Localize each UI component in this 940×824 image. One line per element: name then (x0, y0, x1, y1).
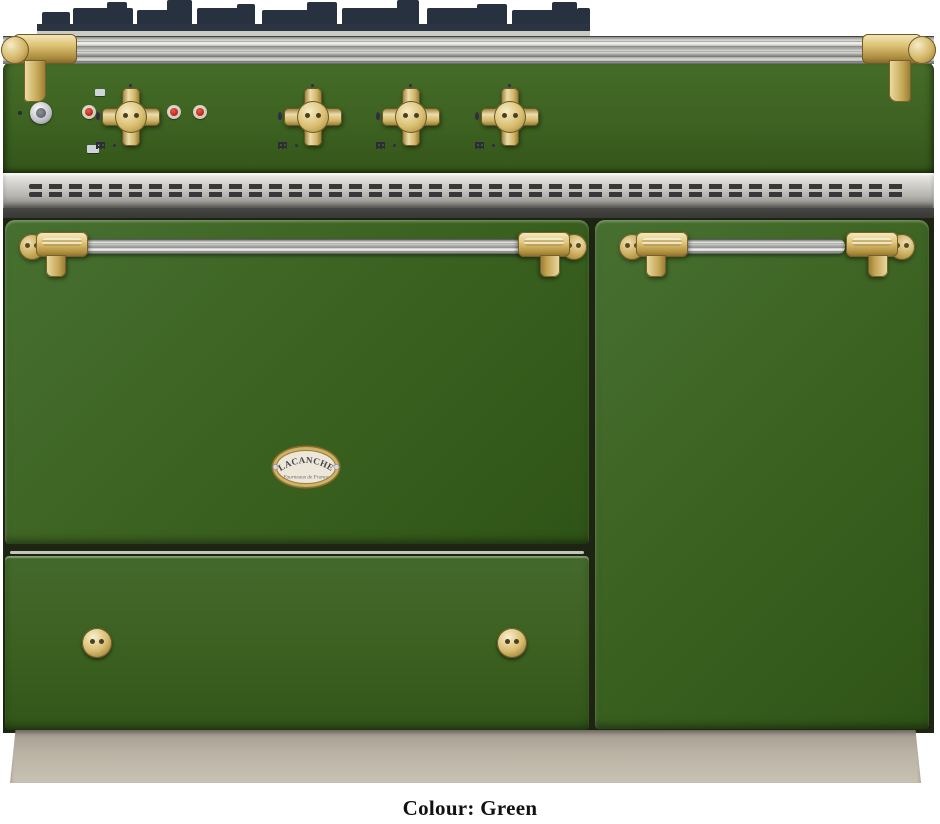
front-towel-rail (3, 36, 934, 64)
vent-slots-row (29, 184, 908, 189)
panel-symbol (475, 142, 484, 149)
vent-strip (3, 173, 934, 208)
storage-drawer (5, 556, 589, 730)
handle-bracket (845, 228, 915, 278)
panel-symbol (129, 84, 132, 87)
panel-symbol (409, 84, 412, 87)
handle-bracket (517, 228, 587, 278)
lacanche-badge: LACANCHE Fourneaux de France (270, 444, 342, 490)
flame-symbol (475, 112, 479, 120)
plinth-base (10, 730, 921, 783)
oven-control-knob (102, 88, 160, 146)
colour-caption: Colour: Green (0, 796, 940, 821)
handle-bracket (19, 228, 89, 278)
badge-tagline-text: Fourneaux de France (282, 475, 329, 481)
panel-symbol (96, 142, 105, 149)
ignition-button (30, 102, 52, 124)
rail-bracket-right (889, 60, 911, 102)
gas-grates (37, 0, 590, 40)
rail-bracket-left (24, 60, 46, 102)
left-door-handle (63, 239, 541, 254)
panel-symbol (113, 144, 116, 147)
burner-control-knob (382, 88, 440, 146)
rail-finial-right (908, 36, 936, 64)
handle-bracket (619, 228, 689, 278)
door-drawer-gap-highlight (10, 551, 584, 554)
left-oven-door: LACANCHE Fourneaux de France (5, 220, 589, 544)
product-photo-lacanche-range: LACANCHE Fourneaux de France Colour: Gre… (0, 0, 940, 824)
right-door-handle (683, 239, 845, 254)
panel-symbol (278, 142, 287, 149)
flame-symbol (278, 112, 282, 120)
drawer-knob-right (497, 628, 527, 658)
flame-symbol (96, 112, 100, 120)
flame-symbol (376, 112, 380, 120)
panel-symbol (393, 144, 396, 147)
panel-dot (18, 111, 22, 115)
right-oven-door (595, 220, 929, 729)
panel-symbol (295, 144, 298, 147)
burner-control-knob (284, 88, 342, 146)
panel-symbol (311, 84, 314, 87)
pilot-light (167, 105, 181, 119)
pilot-light (193, 105, 207, 119)
drawer-knob-left (82, 628, 112, 658)
panel-symbol (376, 142, 385, 149)
pilot-light (82, 105, 96, 119)
panel-symbol (508, 84, 511, 87)
vent-slots-row (29, 192, 908, 197)
burner-control-knob (481, 88, 539, 146)
control-panel (3, 62, 934, 173)
panel-symbol (492, 144, 495, 147)
